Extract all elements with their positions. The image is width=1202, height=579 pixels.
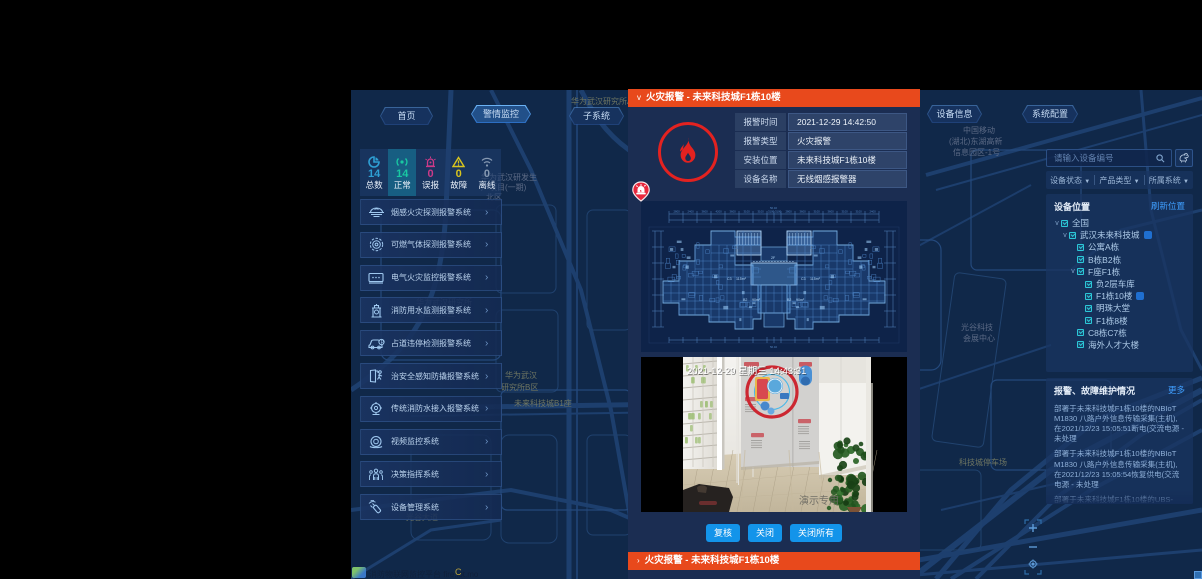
svg-text:3600: 3600 — [702, 210, 709, 214]
svg-text:2400: 2400 — [688, 210, 695, 214]
svg-text:2800: 2800 — [674, 210, 681, 214]
svg-text:中国移动: 中国移动 — [963, 125, 995, 135]
svg-text:光谷科技: 光谷科技 — [961, 322, 993, 332]
svg-text:56.40: 56.40 — [770, 345, 777, 349]
svg-text:3100: 3100 — [768, 210, 775, 214]
svg-text:华为武汉: 华为武汉 — [505, 370, 537, 380]
svg-text:56.40: 56.40 — [770, 206, 777, 210]
svg-text:C3: C3 — [727, 277, 732, 281]
svg-text:3100: 3100 — [775, 210, 782, 214]
svg-text:3100: 3100 — [744, 210, 751, 214]
svg-text:2400: 2400 — [870, 210, 877, 214]
svg-text:2021-12-29 星期三 14:43:31: 2021-12-29 星期三 14:43:31 — [687, 366, 806, 377]
svg-text:(湖北)东湖高新: (湖北)东湖高新 — [949, 136, 1002, 146]
svg-text:3600: 3600 — [800, 210, 807, 214]
svg-text:演示专用: 演示专用 — [799, 494, 839, 507]
svg-text:3100: 3100 — [758, 210, 765, 214]
svg-text:3100: 3100 — [842, 210, 849, 214]
svg-text:90m²: 90m² — [752, 298, 761, 302]
svg-text:2800: 2800 — [786, 210, 793, 214]
svg-text:4200: 4200 — [716, 210, 723, 214]
svg-text:未来科技城B1座: 未来科技城B1座 — [514, 398, 572, 408]
svg-text:3600: 3600 — [828, 210, 835, 214]
svg-text:3100: 3100 — [814, 210, 821, 214]
svg-text:信息园区-1号: 信息园区-1号 — [953, 147, 1000, 157]
svg-text:3100: 3100 — [856, 210, 863, 214]
svg-text:B2: B2 — [743, 298, 747, 302]
svg-text:科技城停车场: 科技城停车场 — [959, 457, 1007, 467]
svg-text:3600: 3600 — [730, 210, 737, 214]
svg-text:B2: B2 — [787, 298, 791, 302]
svg-text:研究所B区: 研究所B区 — [501, 382, 538, 392]
svg-text:C3: C3 — [801, 277, 806, 281]
svg-text:115m²: 115m² — [736, 277, 747, 281]
svg-text:会展中心: 会展中心 — [963, 333, 995, 343]
svg-text:90m²: 90m² — [796, 298, 805, 302]
svg-text:115m²: 115m² — [810, 277, 821, 281]
